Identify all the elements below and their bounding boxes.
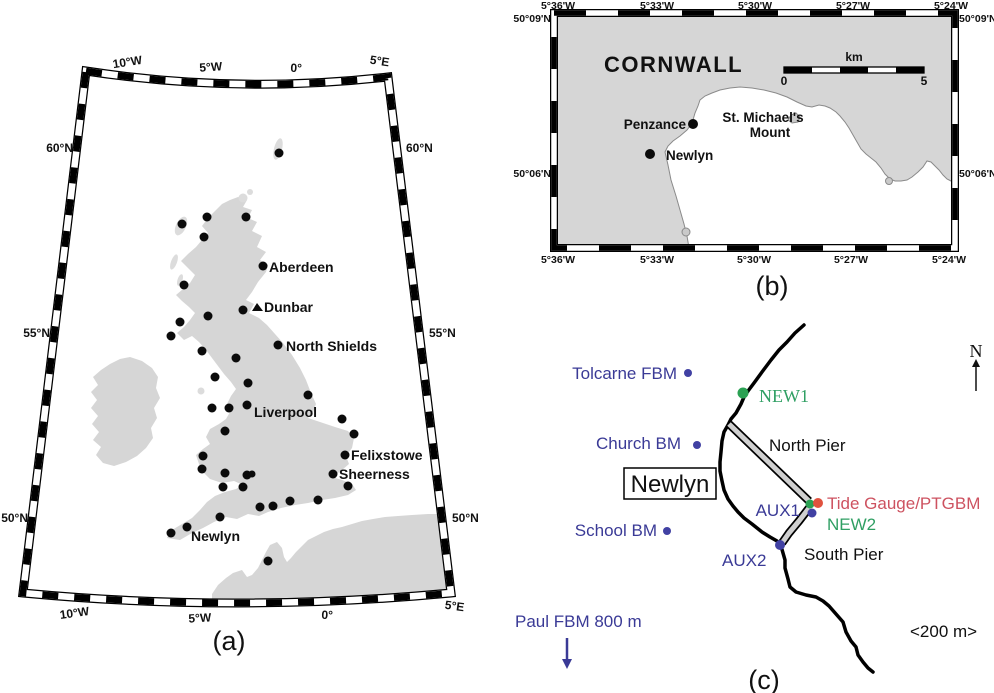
station-dot [344,482,353,491]
station-dot [249,471,256,478]
axis-label-lat: 50°06'N [513,168,551,180]
church-dot [693,441,701,449]
station-label-sheerness: Sheerness [339,466,410,482]
station-dot [198,347,207,356]
axis-label-lon: 5°24'W [932,254,966,266]
label-south-pier: South Pier [804,545,884,564]
label-school-bm: School BM [575,521,657,540]
scalebar-unit-label: km [845,50,862,64]
axis-label-lat: 50°06'N [959,168,994,180]
panel-a-caption: (a) [213,626,246,656]
panel-c-sketch: Tolcarne FBM Church BM School BM AUX1 AU… [515,325,983,693]
label-aux2: AUX2 [722,551,766,570]
label-tide-gauge-ptgbm: Tide Gauge/PTGBM [827,494,980,513]
axis-label-lat: 55°N [23,326,50,340]
tide-gauge-dot [813,498,823,508]
panel-a-land [91,137,451,600]
station-dot [350,430,359,439]
landmass-hebrides [168,253,179,270]
tolcarne-dot [684,369,692,377]
axis-label-lat: 55°N [429,326,456,340]
station-dot [221,427,230,436]
station-dot [225,404,234,413]
axis-label-lon: 5°30'W [738,0,772,12]
station-dot [314,496,323,505]
station-dot [286,497,295,506]
station-dot-sheerness [329,470,338,479]
new1-dot [738,388,749,399]
place-label-mount: Mount [750,125,791,140]
label-new2: NEW2 [827,515,876,534]
station-dot [167,332,176,341]
station-dot [180,281,189,290]
panel-b-map: km 0 5 CORNWALL Penzance St. Michael's M… [513,0,994,301]
penzance-dot [688,119,698,129]
region-label-cornwall: CORNWALL [604,52,743,77]
small-island [682,228,690,236]
station-dot [242,213,251,222]
aux2-dot [775,540,785,550]
station-dot-aberdeen [259,262,268,271]
newlyn-dot [645,149,655,159]
station-label-liverpool: Liverpool [254,404,317,420]
station-dot [211,373,220,382]
label-north-pier: North Pier [769,436,846,455]
station-dot-north-shields [274,341,283,350]
axis-label-lat: 60°N [46,141,73,155]
landmass-ireland [91,357,160,466]
station-dot [198,465,207,474]
landmass-isle-of-man [198,388,205,395]
station-dot [221,469,230,478]
label-tolcarne-fbm: Tolcarne FBM [572,364,677,383]
station-dot-dunbar [239,306,248,315]
axis-label-lon: 5°33'W [640,254,674,266]
school-dot [663,527,671,535]
place-label-newlyn: Newlyn [666,148,713,163]
station-dot-felixstowe [341,451,350,460]
small-island [886,178,893,185]
axis-label-lon: 5°W [199,59,223,75]
paul-fbm-arrow [562,638,572,669]
landmass-orkney2 [247,189,253,195]
axis-label-lat: 50°N [452,511,479,525]
panel-b-caption: (b) [756,271,789,301]
label-aux1: AUX1 [756,501,800,520]
station-dot [256,503,265,512]
station-label-newlyn: Newlyn [191,528,240,544]
station-dot [216,513,225,522]
axis-label-lon: 0° [321,608,333,623]
axis-label-lon: 5°36'W [541,0,575,12]
axis-label-lon: 5°W [188,610,212,625]
axis-label-lon: 5°30'W [737,254,771,266]
label-paul-fbm: Paul FBM 800 m [515,612,642,631]
axis-label-lat: 60°N [406,141,433,155]
station-dot-liverpool [243,401,252,410]
place-label-penzance: Penzance [624,117,687,132]
station-dot [304,391,313,400]
axis-label-lon: 5°E [444,598,465,615]
aux1-dot [808,509,817,518]
axis-label-lon: 10°W [59,604,91,622]
scale-note-label: <200 m> [910,622,977,641]
panel-c-caption: (c) [748,665,779,693]
north-arrow-label: N [970,341,983,361]
station-dot [239,483,248,492]
axis-label-lon: 5°27'W [836,0,870,12]
landmass-great-britain [167,197,356,540]
axis-label-lon: 5°33'W [640,0,674,12]
station-dot [338,415,347,424]
station-dot [232,354,241,363]
place-label-st-michaels: St. Michael's [722,110,803,125]
scalebar-start-label: 0 [781,74,788,88]
station-label-north-shields: North Shields [286,338,377,354]
station-dot [219,483,228,492]
label-newlyn-town: Newlyn [631,471,710,498]
panel-a-map: Aberdeen Dunbar North Shields Liverpool … [1,53,479,656]
landmass-france [212,514,451,600]
station-dot [275,149,284,158]
station-label-aberdeen: Aberdeen [269,259,334,275]
axis-label-lat: 50°N [1,511,28,525]
newlyn-town-box: Newlyn [624,468,716,499]
axis-label-lat: 50°09'N [513,13,551,25]
axis-label-lon: 10°W [112,53,144,72]
station-dot [244,379,253,388]
station-dot [200,233,209,242]
station-dot [208,404,217,413]
station-label-dunbar: Dunbar [264,299,314,315]
axis-label-lat: 50°09'N [959,13,994,25]
station-dot [203,213,212,222]
label-new1: NEW1 [759,386,809,406]
landmass-orkney [239,194,248,203]
axis-label-lon: 5°36'W [541,254,575,266]
station-dot [176,318,185,327]
north-arrow: N [970,341,983,391]
station-dot [178,220,187,229]
tide-gauge-figure: Aberdeen Dunbar North Shields Liverpool … [0,0,994,693]
figure-canvas: Aberdeen Dunbar North Shields Liverpool … [0,0,994,693]
axis-label-lon: 5°E [369,53,390,70]
scalebar-end-label: 5 [921,74,928,88]
station-label-felixstowe: Felixstowe [351,447,423,463]
axis-label-lon: 5°27'W [834,254,868,266]
axis-label-lon: 5°24'W [934,0,968,12]
station-dot [264,557,273,566]
station-dot [199,452,208,461]
station-dot [269,502,278,511]
station-dot [167,529,176,538]
axis-label-lon: 0° [290,61,302,76]
station-dot [204,312,213,321]
label-church-bm: Church BM [596,434,681,453]
